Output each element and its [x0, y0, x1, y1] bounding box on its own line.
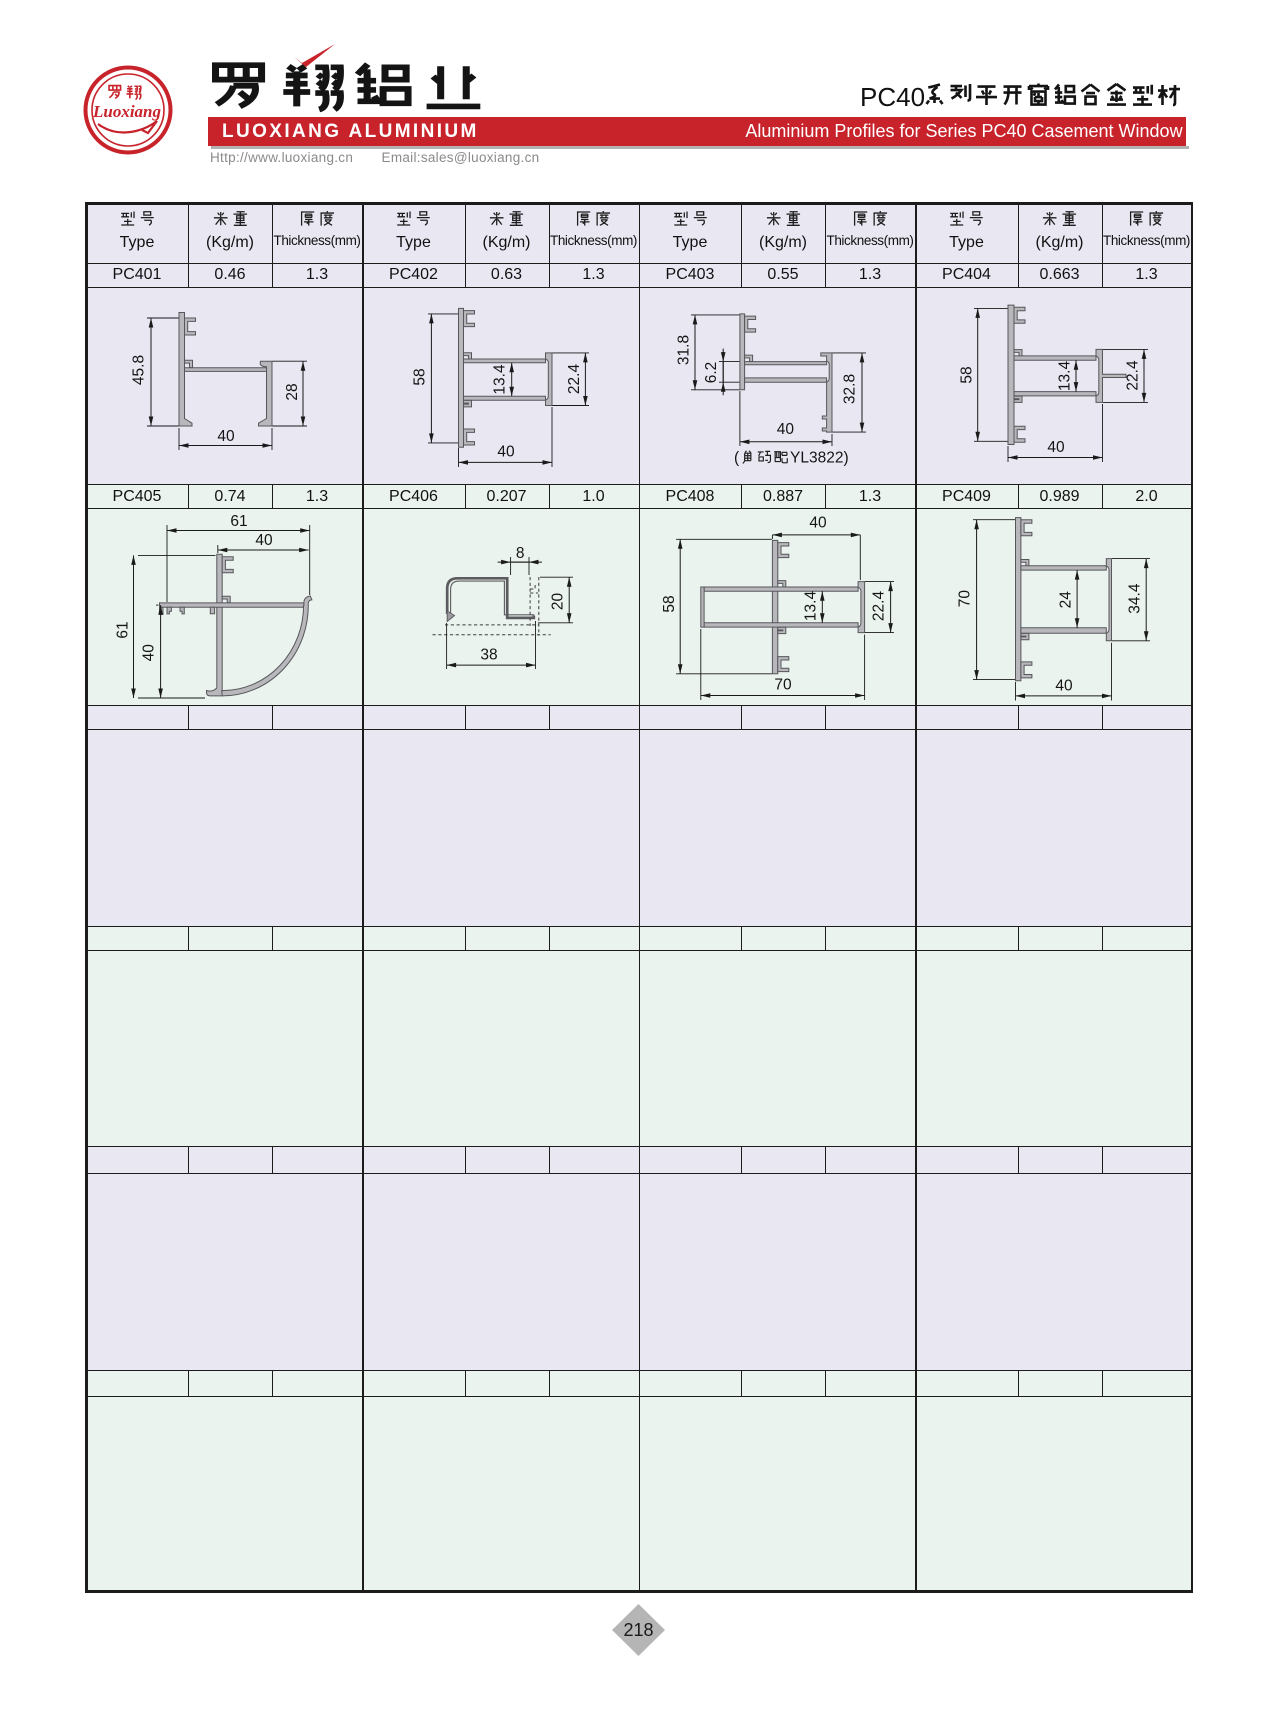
svg-text:32.8: 32.8: [842, 374, 859, 404]
svg-text:13.4: 13.4: [1057, 361, 1074, 392]
svg-text:22.4: 22.4: [566, 364, 583, 395]
svg-text:31.8: 31.8: [676, 335, 693, 365]
svg-text:58: 58: [661, 595, 678, 612]
svg-text:22.4: 22.4: [871, 591, 888, 622]
svg-text:58: 58: [412, 368, 429, 385]
svg-text:13.4: 13.4: [803, 591, 820, 622]
svg-text:22.4: 22.4: [1125, 360, 1142, 391]
svg-text:40: 40: [255, 532, 273, 549]
svg-text:45.8: 45.8: [131, 355, 148, 385]
svg-text:6.2: 6.2: [703, 362, 720, 384]
svg-text:40: 40: [1055, 678, 1073, 695]
svg-text:40: 40: [497, 444, 515, 461]
svg-text:24: 24: [1058, 591, 1075, 609]
svg-text:40: 40: [141, 644, 158, 662]
svg-text:58: 58: [959, 366, 976, 383]
svg-text:40: 40: [1047, 439, 1065, 456]
svg-text:8: 8: [516, 545, 525, 562]
svg-text:40: 40: [217, 428, 235, 445]
svg-text:40: 40: [809, 515, 827, 532]
svg-text:70: 70: [957, 590, 974, 608]
svg-text:38: 38: [480, 647, 497, 664]
svg-text:70: 70: [774, 677, 792, 694]
svg-text:YL3822): YL3822): [790, 450, 849, 467]
svg-text:20: 20: [550, 593, 567, 611]
svg-text:28: 28: [284, 383, 301, 400]
svg-text:61: 61: [115, 621, 132, 638]
svg-text:61: 61: [230, 513, 247, 530]
svg-text:40: 40: [777, 421, 795, 438]
svg-text:(: (: [734, 450, 740, 467]
svg-text:34.4: 34.4: [1127, 583, 1144, 614]
svg-text:13.4: 13.4: [492, 364, 509, 395]
